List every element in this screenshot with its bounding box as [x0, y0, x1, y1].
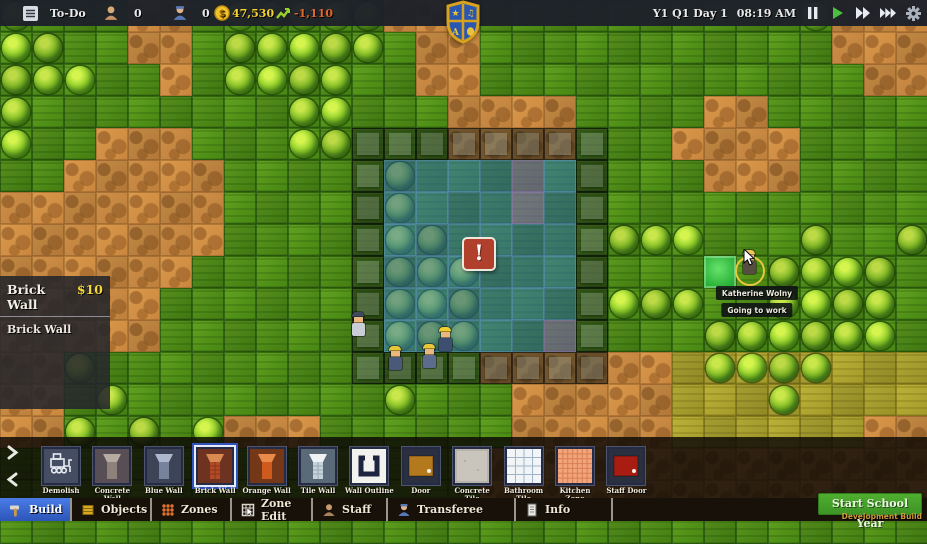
map-tile-grass[interactable]: [352, 64, 384, 96]
map-tile-bush[interactable]: [896, 224, 927, 256]
map-tile-bush[interactable]: [832, 256, 864, 288]
map-tile-grass[interactable]: [896, 192, 927, 224]
map-tile-grass[interactable]: [768, 32, 800, 64]
map-tile-bush[interactable]: [224, 64, 256, 96]
map-tile-grass[interactable]: [256, 192, 288, 224]
map-tile-dirt[interactable]: [512, 384, 544, 416]
toolbar-expand-icon[interactable]: [6, 445, 26, 464]
map-tile-bush[interactable]: [0, 128, 32, 160]
map-tile-grass[interactable]: [256, 320, 288, 352]
map-tile-grass[interactable]: [640, 64, 672, 96]
map-tile-bush[interactable]: [384, 384, 416, 416]
map-tile-wall-blueprint[interactable]: [544, 128, 576, 160]
map-tile-wall-blueprint[interactable]: [576, 128, 608, 160]
map-tile-bush[interactable]: [672, 288, 704, 320]
map-tile-grass[interactable]: [160, 352, 192, 384]
map-tile-room-blueprint[interactable]: [480, 320, 512, 352]
tool-kitchen-zone[interactable]: Kitchen Zone: [549, 447, 601, 502]
map-tile-grass[interactable]: [896, 128, 927, 160]
map-tile-wall-blueprint[interactable]: [416, 128, 448, 160]
map-tile-dirt[interactable]: [736, 96, 768, 128]
map-tile-bush[interactable]: [288, 96, 320, 128]
map-tile-dirt[interactable]: [128, 320, 160, 352]
map-tile-grass[interactable]: [672, 160, 704, 192]
map-tile-dry-grass[interactable]: [896, 384, 927, 416]
map-tile-grass[interactable]: [288, 256, 320, 288]
map-tile-grass[interactable]: [832, 64, 864, 96]
menu-icon[interactable]: [22, 0, 39, 26]
map-tile-grass[interactable]: [320, 256, 352, 288]
door-icon[interactable]: [402, 447, 440, 485]
map-tile-dry-grass[interactable]: [736, 384, 768, 416]
grid-icon[interactable]: [505, 447, 543, 485]
map-tile-grass[interactable]: [288, 352, 320, 384]
map-tile-grass[interactable]: [224, 160, 256, 192]
map-tile-dirt[interactable]: [832, 32, 864, 64]
map-tile-bush[interactable]: [256, 64, 288, 96]
map-tile-bush[interactable]: [640, 288, 672, 320]
map-tile-grass[interactable]: [192, 128, 224, 160]
map-tile-dirt[interactable]: [192, 224, 224, 256]
map-tile-grass[interactable]: [192, 256, 224, 288]
map-tile-bush[interactable]: [0, 64, 32, 96]
map-tile-bush[interactable]: [320, 96, 352, 128]
tool-wall-outline[interactable]: Wall Outline: [343, 447, 395, 495]
map-tile-room-blueprint[interactable]: [416, 224, 448, 256]
play-button[interactable]: [830, 5, 846, 21]
map-tile-grass[interactable]: [256, 96, 288, 128]
map-tile-dirt[interactable]: [96, 192, 128, 224]
worker-sprite[interactable]: [387, 346, 403, 373]
map-tile-room-blueprint[interactable]: [448, 288, 480, 320]
map-tile-grass[interactable]: [96, 64, 128, 96]
map-tile-grass[interactable]: [160, 320, 192, 352]
map-tile-grass[interactable]: [288, 288, 320, 320]
map-tile-bush[interactable]: [768, 352, 800, 384]
map-tile-grass[interactable]: [640, 320, 672, 352]
map-tile-grass[interactable]: [256, 352, 288, 384]
map-tile-grass[interactable]: [416, 96, 448, 128]
map-tile-grass[interactable]: [96, 32, 128, 64]
map-tile-bush[interactable]: [768, 320, 800, 352]
map-tile-bush[interactable]: [32, 32, 64, 64]
map-tile-bush[interactable]: [832, 320, 864, 352]
tool-concrete-tile[interactable]: Concrete Tile: [446, 447, 498, 502]
map-tile-dirt[interactable]: [448, 64, 480, 96]
map-tile-grass[interactable]: [320, 384, 352, 416]
map-tile-dirt[interactable]: [640, 384, 672, 416]
map-tile-grass[interactable]: [512, 32, 544, 64]
map-tile-grass[interactable]: [800, 64, 832, 96]
map-tile-grass[interactable]: [608, 96, 640, 128]
map-tile-dirt[interactable]: [128, 256, 160, 288]
map-tile-room-blueprint[interactable]: [512, 320, 544, 352]
map-tile-bush[interactable]: [672, 224, 704, 256]
map-tile-bush[interactable]: [736, 352, 768, 384]
map-tile-grass[interactable]: [384, 96, 416, 128]
map-tile-grass[interactable]: [160, 384, 192, 416]
worker-sprite[interactable]: [437, 327, 453, 354]
map-tile-grass[interactable]: [608, 320, 640, 352]
map-tile-dirt[interactable]: [192, 192, 224, 224]
map-tile-grass[interactable]: [480, 64, 512, 96]
map-tile-dirt[interactable]: [128, 160, 160, 192]
map-tile-bush[interactable]: [320, 32, 352, 64]
map-tile-dirt[interactable]: [576, 384, 608, 416]
map-tile-dirt[interactable]: [768, 128, 800, 160]
map-tile-dirt[interactable]: [128, 192, 160, 224]
settings-gear-icon[interactable]: [905, 5, 921, 21]
map-tile-grass[interactable]: [864, 192, 896, 224]
map-tile-bush[interactable]: [800, 256, 832, 288]
map-tile-dirt[interactable]: [160, 128, 192, 160]
map-tile-room-blueprint[interactable]: [544, 192, 576, 224]
map-tile-dirt[interactable]: [96, 128, 128, 160]
map-tile-bush[interactable]: [0, 32, 32, 64]
map-tile-bush[interactable]: [800, 320, 832, 352]
selected-map-tile[interactable]: [704, 256, 736, 288]
map-tile-dirt[interactable]: [64, 160, 96, 192]
map-tile-grass[interactable]: [64, 128, 96, 160]
map-tile-zone-blueprint[interactable]: [512, 192, 544, 224]
map-tile-grass[interactable]: [256, 128, 288, 160]
toolbar-collapse-icon[interactable]: [6, 472, 26, 491]
map-tile-grass[interactable]: [320, 224, 352, 256]
map-tile-dirt[interactable]: [544, 96, 576, 128]
map-tile-dirt[interactable]: [448, 96, 480, 128]
map-tile-grass[interactable]: [832, 96, 864, 128]
map-tile-grass[interactable]: [672, 32, 704, 64]
map-tile-dirt[interactable]: [864, 32, 896, 64]
map-tile-wall-blueprint[interactable]: [576, 160, 608, 192]
map-tile-room-blueprint[interactable]: [544, 288, 576, 320]
map-tile-grass[interactable]: [768, 64, 800, 96]
map-tile-grass[interactable]: [352, 384, 384, 416]
map-tile-grass[interactable]: [416, 384, 448, 416]
tab-staff[interactable]: Staff: [313, 498, 388, 521]
fast-forward-button[interactable]: [855, 5, 871, 21]
map-tile-wall-blueprint[interactable]: [512, 352, 544, 384]
map-tile-grass[interactable]: [864, 96, 896, 128]
map-tile-wall-blueprint[interactable]: [352, 128, 384, 160]
map-tile-grass[interactable]: [96, 96, 128, 128]
map-tile-grass[interactable]: [224, 256, 256, 288]
map-tile-dirt[interactable]: [160, 32, 192, 64]
map-tile-grass[interactable]: [672, 256, 704, 288]
tool-orange-wall[interactable]: Orange Wall: [241, 447, 293, 495]
map-tile-dry-grass[interactable]: [832, 384, 864, 416]
door-icon[interactable]: [607, 447, 645, 485]
map-tile-grass[interactable]: [832, 160, 864, 192]
map-tile-grass[interactable]: [768, 224, 800, 256]
map-tile-dry-grass[interactable]: [704, 384, 736, 416]
map-tile-room-blueprint[interactable]: [384, 192, 416, 224]
map-tile-dirt[interactable]: [160, 64, 192, 96]
map-tile-dirt[interactable]: [128, 224, 160, 256]
tool-brick-wall[interactable]: Brick Wall: [189, 447, 241, 495]
map-tile-grass[interactable]: [480, 384, 512, 416]
map-tile-grass[interactable]: [384, 64, 416, 96]
map-tile-dirt[interactable]: [704, 96, 736, 128]
map-tile-grass[interactable]: [704, 64, 736, 96]
map-tile-wall-blueprint[interactable]: [448, 352, 480, 384]
map-tile-room-blueprint[interactable]: [448, 160, 480, 192]
map-tile-wall-blueprint[interactable]: [352, 160, 384, 192]
map-tile-grass[interactable]: [192, 320, 224, 352]
map-tile-grass[interactable]: [704, 192, 736, 224]
map-tile-grass[interactable]: [192, 96, 224, 128]
map-tile-zone-blueprint[interactable]: [544, 320, 576, 352]
wall-icon[interactable]: [145, 447, 183, 485]
map-tile-wall-blueprint[interactable]: [480, 352, 512, 384]
map-tile-grass[interactable]: [896, 288, 927, 320]
map-tile-grass[interactable]: [608, 32, 640, 64]
map-tile-grass[interactable]: [640, 256, 672, 288]
map-tile-room-blueprint[interactable]: [384, 256, 416, 288]
map-tile-dirt[interactable]: [64, 224, 96, 256]
map-tile-dirt[interactable]: [416, 64, 448, 96]
tab-info[interactable]: Info: [516, 498, 613, 521]
map-tile-grass[interactable]: [256, 256, 288, 288]
map-tile-bush[interactable]: [288, 64, 320, 96]
map-tile-grass[interactable]: [64, 32, 96, 64]
grid-icon[interactable]: [556, 447, 594, 485]
map-tile-dirt[interactable]: [128, 288, 160, 320]
map-tile-room-blueprint[interactable]: [544, 224, 576, 256]
map-tile-wall-blueprint[interactable]: [352, 192, 384, 224]
map-tile-grass[interactable]: [608, 192, 640, 224]
map-tile-grass[interactable]: [576, 64, 608, 96]
map-tile-grass[interactable]: [832, 224, 864, 256]
map-tile-wall-blueprint[interactable]: [352, 352, 384, 384]
map-tile-room-blueprint[interactable]: [416, 160, 448, 192]
pause-button[interactable]: [805, 5, 821, 21]
map-tile-grass[interactable]: [832, 192, 864, 224]
tool-blue-wall[interactable]: Blue Wall: [138, 447, 190, 495]
map-tile-room-blueprint[interactable]: [416, 256, 448, 288]
map-tile-grass[interactable]: [256, 160, 288, 192]
map-tile-grass[interactable]: [736, 192, 768, 224]
map-tile-dry-grass[interactable]: [672, 352, 704, 384]
map-tile-grass[interactable]: [224, 352, 256, 384]
map-tile-grass[interactable]: [800, 128, 832, 160]
map-tile-grass[interactable]: [672, 96, 704, 128]
outline-icon[interactable]: [350, 447, 388, 485]
wall-icon[interactable]: [196, 447, 234, 485]
tool-tile-wall[interactable]: Tile Wall: [292, 447, 344, 495]
map-tile-grass[interactable]: [832, 128, 864, 160]
map-tile-grass[interactable]: [128, 352, 160, 384]
map-tile-bush[interactable]: [832, 288, 864, 320]
map-tile-room-blueprint[interactable]: [544, 256, 576, 288]
map-tile-dry-grass[interactable]: [864, 384, 896, 416]
map-tile-dry-grass[interactable]: [672, 384, 704, 416]
map-tile-grass[interactable]: [256, 384, 288, 416]
map-tile-bush[interactable]: [704, 352, 736, 384]
map-tile-grass[interactable]: [672, 192, 704, 224]
map-tile-dirt[interactable]: [32, 224, 64, 256]
staff-icon[interactable]: [172, 0, 188, 26]
wall-icon[interactable]: [93, 447, 131, 485]
map-tile-grass[interactable]: [640, 128, 672, 160]
map-tile-dirt[interactable]: [704, 160, 736, 192]
tab-objects[interactable]: Objects: [72, 498, 152, 521]
wall-icon[interactable]: [299, 447, 337, 485]
map-tile-wall-blueprint[interactable]: [480, 128, 512, 160]
tab-zones[interactable]: Zones: [152, 498, 232, 521]
worker-sprite[interactable]: [421, 344, 437, 371]
map-tile-bush[interactable]: [352, 32, 384, 64]
map-tile-grass[interactable]: [192, 64, 224, 96]
map-tile-grass[interactable]: [768, 192, 800, 224]
map-tile-grass[interactable]: [576, 32, 608, 64]
map-tile-grass[interactable]: [704, 224, 736, 256]
map-tile-room-blueprint[interactable]: [512, 224, 544, 256]
map-tile-wall-blueprint[interactable]: [576, 320, 608, 352]
tool-door[interactable]: Door: [395, 447, 447, 495]
map-tile-grass[interactable]: [320, 320, 352, 352]
map-tile-grass[interactable]: [320, 352, 352, 384]
map-tile-grass[interactable]: [864, 224, 896, 256]
map-tile-dirt[interactable]: [608, 384, 640, 416]
map-tile-dirt[interactable]: [160, 192, 192, 224]
map-tile-bush[interactable]: [288, 128, 320, 160]
map-tile-dirt[interactable]: [160, 256, 192, 288]
map-tile-zone-blueprint[interactable]: [512, 160, 544, 192]
map-tile-grass[interactable]: [736, 32, 768, 64]
map-tile-room-blueprint[interactable]: [512, 256, 544, 288]
map-tile-grass[interactable]: [192, 384, 224, 416]
tab-transferee[interactable]: Transferee: [388, 498, 516, 521]
map-tile-bush[interactable]: [320, 128, 352, 160]
map-tile-dry-grass[interactable]: [800, 384, 832, 416]
map-tile-room-blueprint[interactable]: [416, 192, 448, 224]
map-tile-grass[interactable]: [160, 96, 192, 128]
fastest-forward-button[interactable]: [880, 5, 896, 21]
map-tile-wall-blueprint[interactable]: [576, 192, 608, 224]
map-tile-dirt[interactable]: [0, 192, 32, 224]
map-tile-grass[interactable]: [192, 352, 224, 384]
map-tile-dirt[interactable]: [160, 160, 192, 192]
map-tile-dry-grass[interactable]: [832, 352, 864, 384]
map-tile-dirt[interactable]: [480, 96, 512, 128]
map-tile-dirt[interactable]: [768, 160, 800, 192]
map-tile-dirt[interactable]: [160, 224, 192, 256]
map-tile-dirt[interactable]: [512, 96, 544, 128]
map-tile-grass[interactable]: [768, 96, 800, 128]
map-tile-room-blueprint[interactable]: [384, 288, 416, 320]
map-tile-grass[interactable]: [320, 192, 352, 224]
map-tile-grass[interactable]: [32, 160, 64, 192]
students-icon[interactable]: [103, 0, 119, 26]
map-tile-room-blueprint[interactable]: [544, 160, 576, 192]
worker-sprite[interactable]: [350, 312, 366, 339]
map-tile-grass[interactable]: [64, 96, 96, 128]
map-tile-dirt[interactable]: [128, 32, 160, 64]
map-tile-dirt[interactable]: [544, 384, 576, 416]
map-tile-room-blueprint[interactable]: [416, 288, 448, 320]
map-tile-bush[interactable]: [224, 32, 256, 64]
map-tile-grass[interactable]: [160, 288, 192, 320]
map-tile-grass[interactable]: [640, 192, 672, 224]
map-tile-bush[interactable]: [768, 256, 800, 288]
map-tile-grass[interactable]: [800, 192, 832, 224]
map-tile-grass[interactable]: [224, 384, 256, 416]
map-tile-wall-blueprint[interactable]: [512, 128, 544, 160]
map-tile-wall-blueprint[interactable]: [576, 352, 608, 384]
map-tile-bush[interactable]: [288, 32, 320, 64]
map-tile-bush[interactable]: [768, 384, 800, 416]
map-tile-grass[interactable]: [288, 224, 320, 256]
map-tile-grass[interactable]: [448, 384, 480, 416]
map-tile-grass[interactable]: [640, 32, 672, 64]
map-tile-room-blueprint[interactable]: [384, 160, 416, 192]
map-tile-grass[interactable]: [576, 96, 608, 128]
tool-staff-door[interactable]: Staff Door: [600, 447, 652, 495]
map-tile-bush[interactable]: [64, 64, 96, 96]
map-tile-grass[interactable]: [800, 160, 832, 192]
map-tile-grass[interactable]: [864, 160, 896, 192]
map-tile-grass[interactable]: [32, 128, 64, 160]
map-tile-dirt[interactable]: [192, 160, 224, 192]
map-tile-grass[interactable]: [480, 32, 512, 64]
tab-zone-edit[interactable]: Zone Edit: [232, 498, 313, 521]
map-tile-bush[interactable]: [800, 288, 832, 320]
map-tile-dirt[interactable]: [640, 352, 672, 384]
map-tile-grass[interactable]: [192, 32, 224, 64]
map-tile-grass[interactable]: [640, 160, 672, 192]
map-tile-grass[interactable]: [608, 64, 640, 96]
map-tile-grass[interactable]: [800, 32, 832, 64]
map-tile-wall-blueprint[interactable]: [576, 256, 608, 288]
map-tile-dirt[interactable]: [0, 224, 32, 256]
map-tile-dirt[interactable]: [896, 32, 927, 64]
map-tile-grass[interactable]: [128, 96, 160, 128]
map-tile-grass[interactable]: [224, 224, 256, 256]
map-tile-grass[interactable]: [32, 96, 64, 128]
map-tile-dirt[interactable]: [608, 352, 640, 384]
map-tile-grass[interactable]: [800, 96, 832, 128]
map-tile-grass[interactable]: [672, 320, 704, 352]
map-tile-bush[interactable]: [32, 64, 64, 96]
map-tile-grass[interactable]: [512, 64, 544, 96]
map-tile-dirt[interactable]: [736, 160, 768, 192]
map-tile-grass[interactable]: [608, 256, 640, 288]
map-tile-wall-blueprint[interactable]: [448, 128, 480, 160]
map-tile-grass[interactable]: [896, 160, 927, 192]
map-tile-dry-grass[interactable]: [864, 352, 896, 384]
map-tile-grass[interactable]: [544, 64, 576, 96]
map-tile-grass[interactable]: [288, 160, 320, 192]
map-tile-grass[interactable]: [288, 192, 320, 224]
map-tile-grass[interactable]: [224, 320, 256, 352]
map-tile-grass[interactable]: [224, 192, 256, 224]
map-tile-dirt[interactable]: [672, 128, 704, 160]
tool-demolish[interactable]: Demolish: [35, 447, 87, 495]
map-tile-bush[interactable]: [704, 320, 736, 352]
map-tile-bush[interactable]: [320, 64, 352, 96]
map-tile-grass[interactable]: [352, 96, 384, 128]
map-tile-dirt[interactable]: [896, 64, 927, 96]
tool-bathroom-tile[interactable]: Bathroom Tile: [498, 447, 550, 502]
demolish-icon[interactable]: [42, 447, 80, 485]
tab-build[interactable]: Build: [0, 498, 72, 521]
map-tile-dirt[interactable]: [96, 224, 128, 256]
map-tile-dirt[interactable]: [32, 192, 64, 224]
map-tile-bush[interactable]: [864, 320, 896, 352]
map-tile-grass[interactable]: [192, 288, 224, 320]
map-tile-grass[interactable]: [384, 32, 416, 64]
